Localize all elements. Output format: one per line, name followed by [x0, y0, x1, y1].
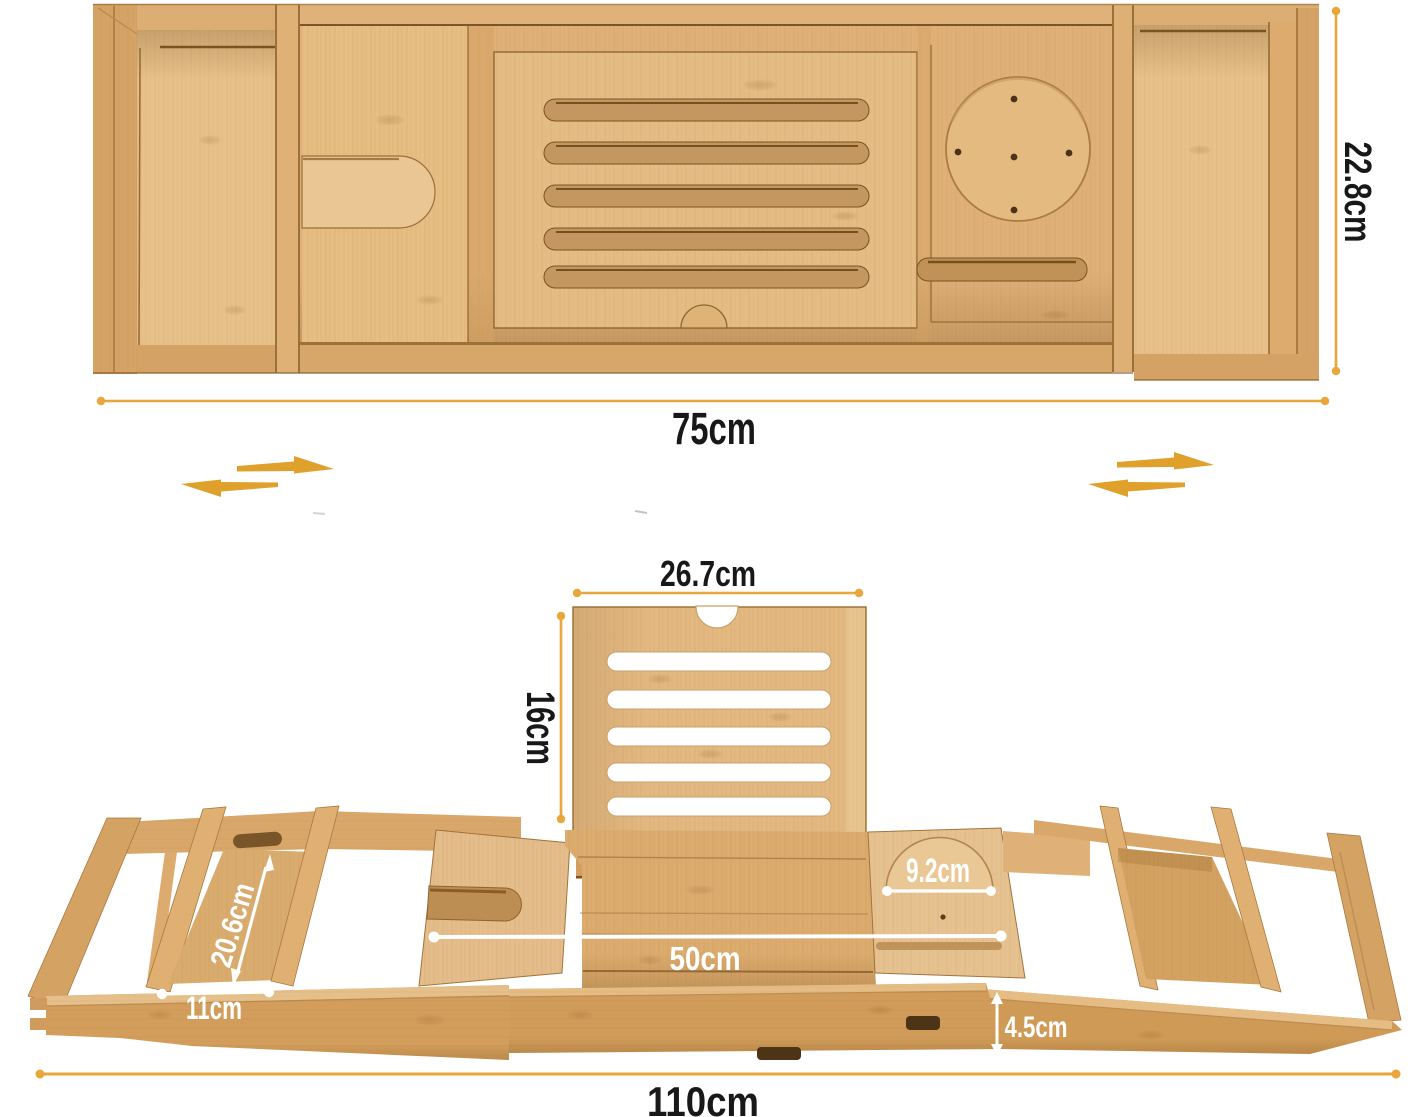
svg-text:75cm: 75cm [672, 403, 756, 454]
svg-text:9.2cm: 9.2cm [906, 852, 970, 890]
svg-text:22.8cm: 22.8cm [1336, 142, 1378, 243]
svg-text:26.7cm: 26.7cm [660, 553, 756, 594]
svg-text:16cm: 16cm [518, 691, 562, 765]
svg-text:11cm: 11cm [186, 990, 242, 1026]
svg-text:4.5cm: 4.5cm [1005, 1011, 1068, 1044]
svg-text:110cm: 110cm [647, 1078, 759, 1117]
svg-text:50cm: 50cm [670, 940, 741, 977]
